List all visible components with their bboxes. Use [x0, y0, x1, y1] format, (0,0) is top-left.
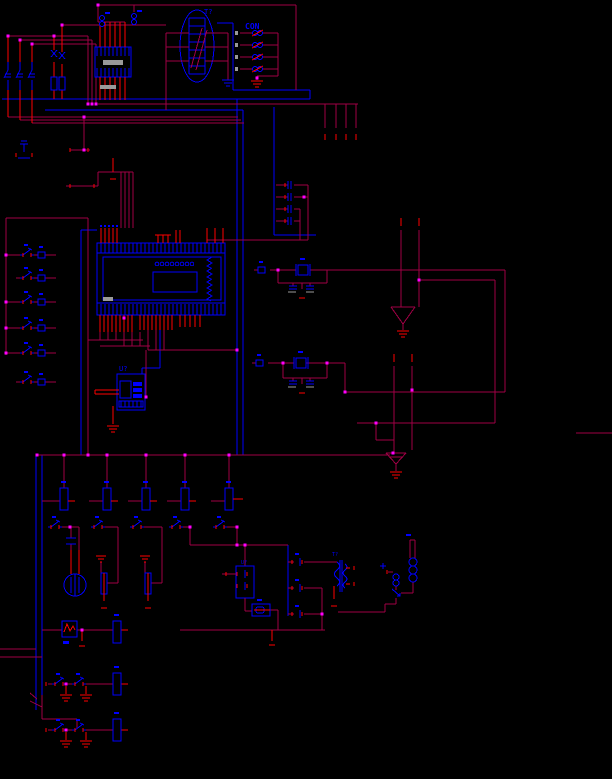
- diode-column[interactable]: [288, 553, 337, 618]
- optocoupler[interactable]: U?: [180, 560, 325, 645]
- resistor-icon[interactable]: [38, 246, 45, 258]
- resistor-icon[interactable]: [38, 319, 45, 331]
- transformer-top-label: T?: [204, 8, 212, 16]
- ground-icon: [222, 80, 234, 86]
- ground-icon: [107, 426, 119, 432]
- breaker-icon[interactable]: [28, 62, 35, 90]
- fuse-icon[interactable]: [51, 50, 65, 90]
- con-label: CON: [245, 22, 260, 31]
- output-rows[interactable]: [0, 614, 132, 747]
- resistor-icon[interactable]: [256, 354, 263, 366]
- optocoupler-label: U?: [241, 560, 247, 566]
- crystal-icon[interactable]: [296, 258, 310, 276]
- resistor-icon[interactable]: [38, 293, 45, 305]
- switch-icon[interactable]: [48, 516, 62, 529]
- switch-icon[interactable]: [72, 673, 86, 686]
- transformer-bottom-label: T?: [332, 552, 338, 558]
- coil-icon[interactable]: [252, 30, 263, 72]
- resistor-icon[interactable]: [38, 344, 45, 356]
- relay-coil-icon[interactable]: [113, 666, 121, 695]
- sensor-box[interactable]: [62, 621, 77, 644]
- buzzer[interactable]: [64, 550, 86, 596]
- resistor-icon[interactable]: [38, 269, 45, 281]
- breaker-icon[interactable]: [16, 62, 23, 90]
- lower-supply-bus[interactable]: [37, 455, 390, 488]
- relay-coil-icon[interactable]: [113, 614, 121, 643]
- top-right-pin-columns[interactable]: [98, 104, 359, 140]
- ground-icon: [251, 81, 263, 87]
- switch-icon[interactable]: [91, 516, 105, 529]
- ic-u[interactable]: U?: [95, 365, 145, 432]
- breaker-icon[interactable]: [4, 62, 11, 90]
- crystal-icon[interactable]: [294, 351, 308, 369]
- switch-icon[interactable]: [20, 267, 34, 280]
- schematic-drawing[interactable]: T? CON: [0, 0, 612, 779]
- pin-connector-block[interactable]: [95, 5, 142, 100]
- switch-icon[interactable]: [20, 371, 34, 384]
- three-phase-input-section[interactable]: [2, 5, 296, 228]
- right-driver-circuit[interactable]: [338, 534, 417, 612]
- resistor-icon[interactable]: [38, 373, 45, 385]
- input-switch-rows[interactable]: [6, 244, 60, 385]
- crystal-circuit-2[interactable]: [248, 351, 345, 393]
- switch-icon[interactable]: [130, 516, 144, 529]
- inductor-icon[interactable]: [100, 5, 143, 27]
- transistor-driver-cells[interactable]: [93, 556, 151, 608]
- switch-icon[interactable]: [20, 342, 34, 355]
- schematic-canvas[interactable]: T? CON: [0, 0, 612, 779]
- switch-icon[interactable]: [52, 673, 66, 686]
- switch-icon[interactable]: [72, 719, 86, 732]
- ic-u-label: U?: [119, 365, 127, 373]
- switch-icon[interactable]: [169, 516, 183, 529]
- switch-icon[interactable]: [20, 317, 34, 330]
- transformer-bottom[interactable]: T?: [331, 552, 354, 606]
- filter-cap-cluster[interactable]: [207, 181, 308, 240]
- crystal-circuit-1[interactable]: [250, 258, 505, 298]
- ground-icon: [390, 331, 409, 478]
- pushbutton-icon[interactable]: [12, 141, 40, 158]
- relay-coil-icon[interactable]: [113, 712, 121, 741]
- comparator-region[interactable]: [345, 218, 612, 478]
- jumper-icon[interactable]: [64, 117, 133, 228]
- capacitor-icon[interactable]: [285, 181, 291, 225]
- resistor-icon[interactable]: [258, 261, 265, 273]
- switch-icon[interactable]: [52, 719, 66, 732]
- switch-icon[interactable]: [213, 516, 227, 529]
- switch-icon[interactable]: [20, 291, 34, 304]
- crystal-box[interactable]: [252, 599, 270, 616]
- switch-icon[interactable]: [20, 244, 34, 257]
